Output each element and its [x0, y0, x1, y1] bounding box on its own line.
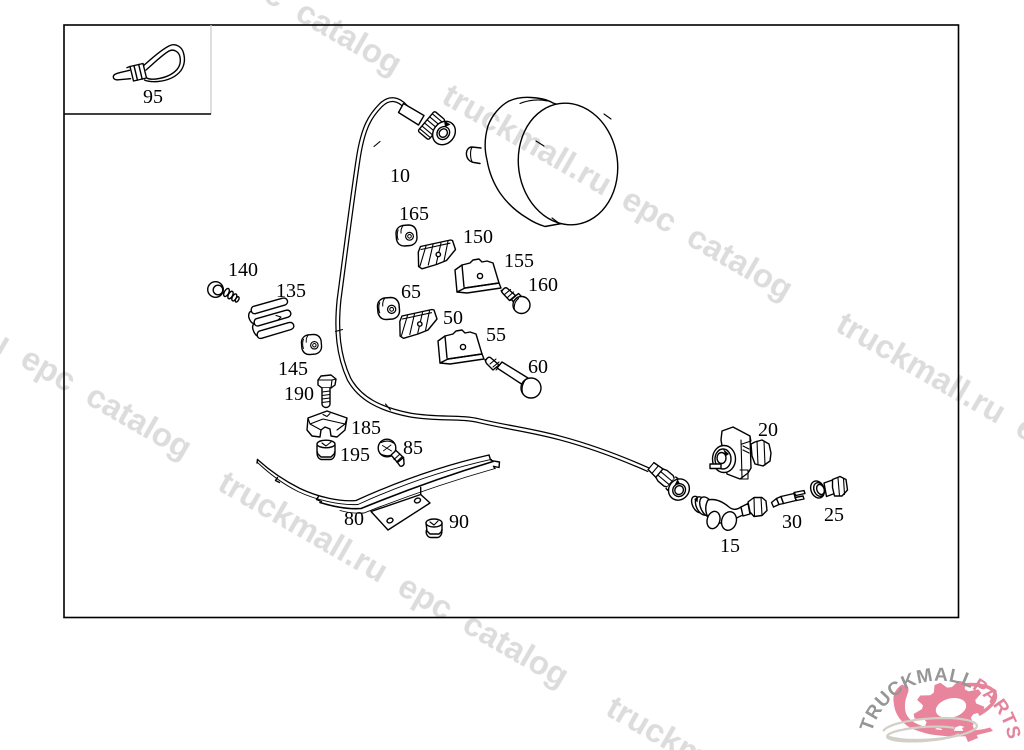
svg-text:30: 30	[782, 511, 802, 533]
svg-text:150: 150	[463, 226, 493, 248]
svg-text:145: 145	[278, 358, 308, 380]
svg-text:50: 50	[443, 307, 463, 329]
svg-text:85: 85	[403, 437, 423, 459]
svg-text:20: 20	[758, 419, 778, 441]
svg-text:80: 80	[344, 508, 364, 530]
svg-text:195: 195	[340, 444, 370, 466]
svg-text:60: 60	[528, 356, 548, 378]
svg-text:90: 90	[449, 511, 469, 533]
svg-text:15: 15	[720, 535, 740, 557]
svg-text:155: 155	[504, 250, 534, 272]
svg-text:25: 25	[824, 504, 844, 526]
svg-text:160: 160	[528, 274, 558, 296]
svg-text:140: 140	[228, 259, 258, 281]
svg-text:165: 165	[399, 203, 429, 225]
svg-text:185: 185	[351, 417, 381, 439]
svg-text:190: 190	[284, 383, 314, 405]
svg-text:95: 95	[143, 86, 163, 108]
svg-text:10: 10	[390, 165, 410, 187]
svg-text:135: 135	[276, 280, 306, 302]
svg-text:55: 55	[486, 324, 506, 346]
svg-text:65: 65	[401, 281, 421, 303]
